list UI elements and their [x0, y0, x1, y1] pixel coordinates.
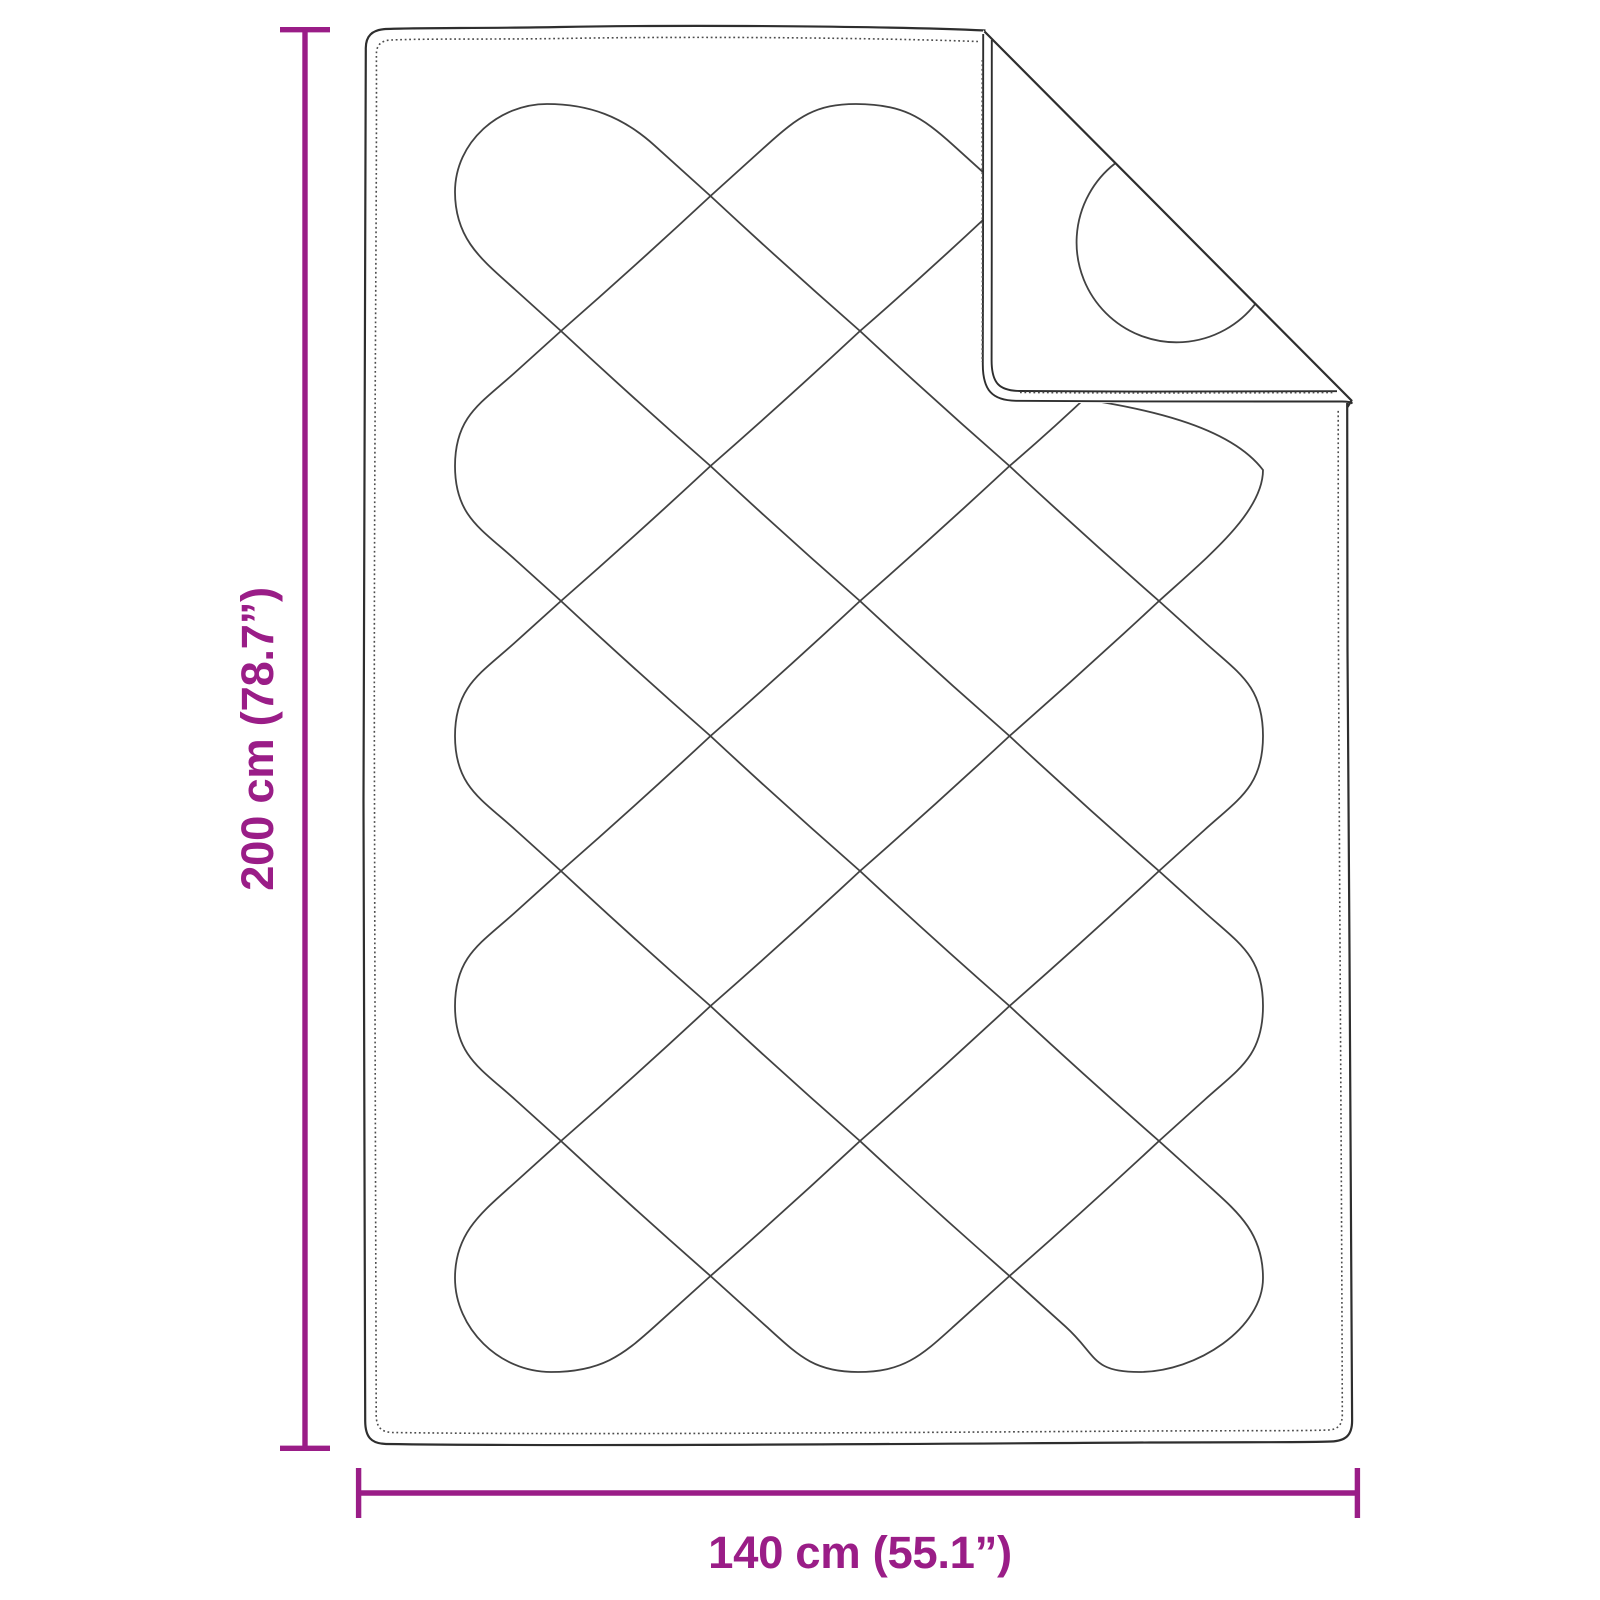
svg-text:200 cm (78.7”): 200 cm (78.7”): [232, 587, 283, 891]
svg-text:140 cm (55.1”): 140 cm (55.1”): [708, 1527, 1012, 1578]
